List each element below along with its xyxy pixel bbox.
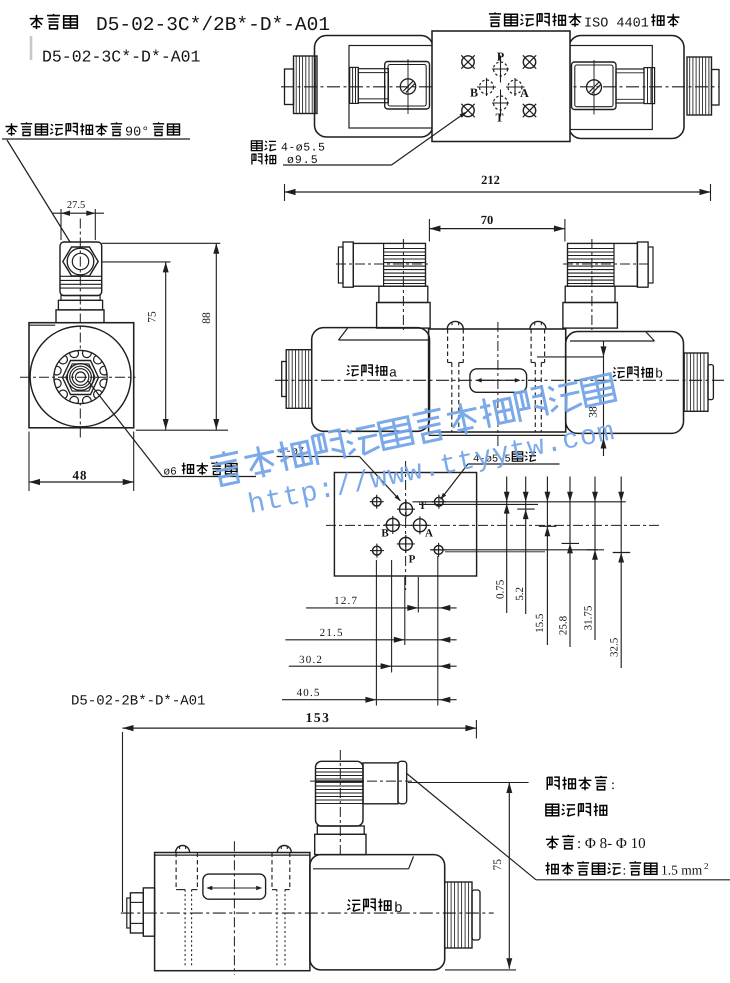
svg-text:B: B [381, 528, 389, 540]
svg-text:88: 88 [201, 312, 213, 324]
svg-text:38: 38 [588, 406, 600, 418]
svg-text::: : [611, 778, 615, 793]
svg-text:A: A [520, 86, 529, 100]
svg-text:b: b [394, 901, 403, 917]
svg-text:32.5: 32.5 [609, 637, 621, 657]
svg-text:12.7: 12.7 [334, 595, 358, 607]
svg-text:25.8: 25.8 [558, 615, 570, 635]
svg-text:31.75: 31.75 [583, 605, 595, 630]
svg-text:ø6: ø6 [164, 467, 177, 479]
svg-text:153: 153 [306, 710, 331, 725]
svg-text:1.5 mm: 1.5 mm [661, 863, 703, 878]
svg-text:75: 75 [146, 311, 158, 323]
svg-text:40.5: 40.5 [297, 687, 321, 699]
svg-text:48: 48 [73, 468, 88, 483]
svg-text:4-ø5.5: 4-ø5.5 [281, 142, 325, 155]
svg-text:A: A [425, 528, 433, 540]
svg-text:P: P [409, 554, 416, 566]
svg-text:2: 2 [704, 861, 709, 871]
svg-text:T: T [495, 111, 503, 125]
svg-text:: Φ 8- Φ 10: : Φ 8- Φ 10 [577, 836, 646, 852]
svg-text:212: 212 [481, 173, 500, 187]
svg-text:D5-02-3C*-D*-A01: D5-02-3C*-D*-A01 [42, 48, 201, 67]
svg-text:70: 70 [481, 213, 494, 227]
svg-text:P: P [497, 50, 504, 64]
svg-text:5.2: 5.2 [514, 587, 526, 601]
svg-text::: : [623, 863, 627, 878]
svg-text:90°: 90° [125, 126, 149, 141]
svg-text:27.5: 27.5 [67, 200, 85, 211]
svg-text:b: b [655, 368, 663, 383]
svg-text:30.2: 30.2 [299, 654, 323, 666]
svg-text:D5-02-2B*-D*-A01: D5-02-2B*-D*-A01 [71, 694, 205, 710]
svg-text:75: 75 [492, 859, 504, 871]
svg-text:B: B [470, 86, 478, 100]
svg-text:0.75: 0.75 [494, 579, 506, 599]
svg-text:21.5: 21.5 [320, 627, 344, 639]
svg-text:15.5: 15.5 [534, 613, 546, 633]
svg-text:ISO 4401: ISO 4401 [584, 17, 649, 32]
svg-text:a: a [389, 367, 397, 382]
svg-text:D5-02-3C*/2B*-D*-A01: D5-02-3C*/2B*-D*-A01 [96, 14, 330, 36]
